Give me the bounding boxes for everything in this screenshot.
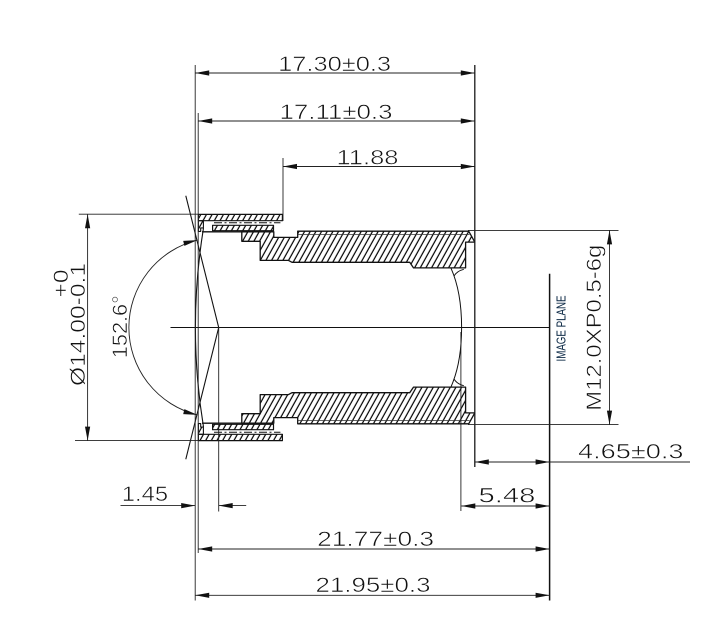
svg-text:5.48: 5.48 <box>479 485 536 508</box>
svg-text:21.95±0.3: 21.95±0.3 <box>316 574 431 597</box>
svg-text:152.6°: 152.6° <box>109 295 132 358</box>
svg-text:+0: +0 <box>50 270 73 298</box>
svg-text:11.88: 11.88 <box>337 147 399 170</box>
svg-text:IMAGE PLANE: IMAGE PLANE <box>555 296 569 362</box>
svg-text:M12.0XP0.5-6g: M12.0XP0.5-6g <box>583 245 606 411</box>
svg-text:4.65±0.3: 4.65±0.3 <box>578 440 684 463</box>
svg-text:21.77±0.3: 21.77±0.3 <box>317 528 434 551</box>
svg-text:1.45: 1.45 <box>122 483 168 506</box>
svg-text:17.11±0.3: 17.11±0.3 <box>280 101 393 124</box>
svg-text:17.30±0.3: 17.30±0.3 <box>278 53 391 76</box>
